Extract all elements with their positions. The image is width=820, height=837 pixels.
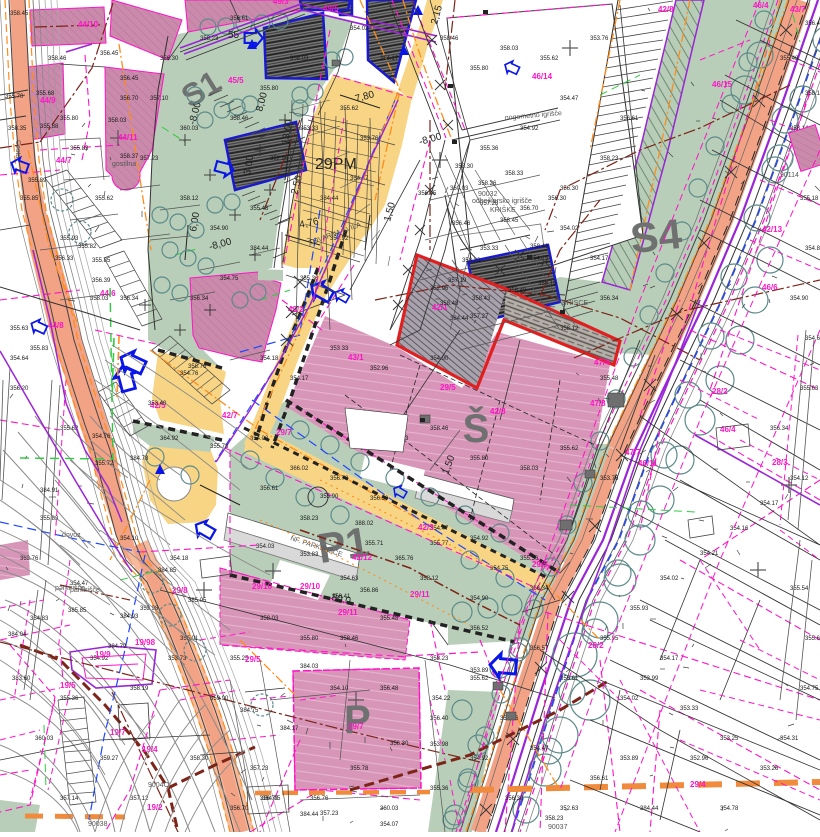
svg-text:29/5: 29/5 (245, 655, 261, 664)
svg-text:44/10: 44/10 (78, 20, 99, 29)
svg-text:356.39: 356.39 (92, 278, 111, 284)
svg-text:354.21: 354.21 (700, 551, 719, 557)
svg-text:356.34: 356.34 (120, 296, 139, 302)
svg-text:358.23: 358.23 (600, 156, 619, 162)
svg-text:357.27: 357.27 (470, 314, 489, 320)
svg-text:353.89: 353.89 (620, 756, 639, 762)
svg-text:354.22: 354.22 (432, 696, 451, 702)
svg-text:42/8: 42/8 (658, 5, 674, 14)
svg-text:355.85: 355.85 (92, 258, 111, 264)
svg-text:384.05: 384.05 (262, 796, 281, 802)
svg-text:358.19: 358.19 (130, 686, 149, 692)
svg-text:358.03: 358.03 (520, 466, 539, 472)
svg-text:354.90: 354.90 (210, 226, 229, 232)
svg-text:360.03: 360.03 (180, 126, 199, 132)
svg-text:366.02: 366.02 (290, 466, 309, 472)
svg-text:29/5: 29/5 (532, 560, 548, 569)
svg-text:353.73: 353.73 (168, 656, 187, 662)
svg-text:358.03: 358.03 (108, 118, 127, 124)
svg-text:354.31: 354.31 (780, 736, 799, 742)
svg-text:356.61: 356.61 (260, 486, 279, 492)
svg-text:42/3: 42/3 (418, 523, 434, 532)
svg-text:47/4: 47/4 (594, 358, 610, 367)
svg-text:355.80: 355.80 (300, 636, 319, 642)
svg-text:356.30: 356.30 (390, 741, 409, 747)
svg-text:355.62: 355.62 (340, 106, 359, 112)
svg-text:357.23: 357.23 (140, 156, 159, 162)
svg-text:44/11: 44/11 (118, 133, 138, 142)
svg-text:358.30: 358.30 (455, 164, 474, 170)
svg-text:354.17: 354.17 (590, 256, 609, 262)
svg-text:356.57: 356.57 (530, 646, 549, 652)
svg-text:47/7: 47/7 (625, 448, 641, 457)
svg-text:355.62: 355.62 (560, 446, 579, 452)
svg-text:356.30: 356.30 (548, 196, 567, 202)
svg-text:44/7: 44/7 (56, 156, 72, 165)
svg-text:90032: 90032 (478, 191, 498, 198)
svg-text:356.61: 356.61 (590, 776, 609, 782)
svg-text:29/11: 29/11 (410, 590, 430, 599)
svg-text:355.63: 355.63 (10, 326, 29, 332)
svg-text:356.70: 356.70 (120, 96, 139, 102)
svg-text:19/98: 19/98 (135, 638, 156, 647)
svg-text:353.98: 353.98 (430, 742, 449, 748)
svg-text:355.72: 355.72 (95, 461, 114, 467)
svg-text:356.40: 356.40 (430, 716, 449, 722)
svg-text:46/14: 46/14 (532, 72, 553, 81)
svg-text:Cesta: Cesta (14, 140, 21, 158)
svg-text:356.45: 356.45 (418, 191, 437, 197)
svg-text:29/11: 29/11 (338, 608, 358, 617)
svg-text:354.63: 354.63 (805, 336, 820, 342)
svg-text:356.52: 356.52 (470, 626, 489, 632)
svg-text:384.78: 384.78 (130, 456, 149, 462)
svg-text:28/2: 28/2 (712, 387, 728, 396)
svg-text:46/11: 46/11 (638, 459, 658, 468)
svg-text:384.03: 384.03 (300, 664, 319, 670)
svg-text:44/9: 44/9 (40, 96, 56, 105)
svg-text:358.40: 358.40 (508, 288, 527, 294)
svg-text:384.04: 384.04 (8, 632, 27, 638)
svg-text:355.48: 355.48 (600, 376, 619, 382)
svg-text:355.82: 355.82 (78, 244, 97, 250)
svg-text:354.17: 354.17 (660, 656, 679, 662)
svg-text:42/13: 42/13 (762, 225, 783, 234)
svg-text:355.48: 355.48 (380, 616, 399, 622)
svg-text:352.63: 352.63 (560, 806, 579, 812)
svg-text:355.68: 355.68 (36, 91, 55, 97)
svg-text:355.80: 355.80 (260, 86, 279, 92)
svg-text:383.60: 383.60 (12, 676, 31, 682)
svg-text:358.46: 358.46 (530, 244, 549, 250)
svg-text:354.76: 354.76 (180, 371, 199, 377)
svg-text:354.02: 354.02 (660, 576, 679, 582)
svg-text:358.03: 358.03 (290, 56, 309, 62)
svg-text:358.23: 358.23 (462, 258, 481, 264)
svg-text:355.90: 355.90 (320, 494, 339, 500)
svg-text:355.88: 355.88 (40, 124, 59, 130)
svg-text:353.33: 353.33 (330, 346, 349, 352)
svg-text:354.18: 354.18 (260, 356, 279, 362)
svg-text:355.80: 355.80 (60, 116, 79, 122)
svg-text:352.96: 352.96 (270, 156, 289, 162)
svg-text:356.45: 356.45 (100, 51, 119, 57)
svg-text:358.45: 358.45 (10, 11, 29, 17)
svg-text:29/5: 29/5 (440, 383, 456, 392)
svg-text:352.96: 352.96 (370, 366, 389, 372)
svg-text:353.26: 353.26 (760, 766, 779, 772)
svg-text:354.10: 354.10 (120, 536, 139, 542)
svg-text:360.03: 360.03 (380, 806, 399, 812)
svg-text:355.62: 355.62 (540, 56, 559, 62)
svg-text:BRISCE: BRISCE (562, 300, 588, 307)
svg-text:29/10: 29/10 (300, 582, 321, 591)
svg-text:364.92: 364.92 (160, 436, 179, 442)
svg-text:356.70: 356.70 (230, 806, 249, 812)
svg-text:358.46: 358.46 (230, 116, 249, 122)
svg-text:357.19: 357.19 (448, 278, 467, 284)
svg-text:354.47: 354.47 (560, 96, 579, 102)
svg-text:42/7: 42/7 (222, 411, 238, 420)
svg-text:354.17: 354.17 (380, 56, 399, 62)
svg-text:358.35: 358.35 (8, 126, 27, 132)
svg-text:356.46: 356.46 (452, 221, 471, 227)
svg-text:354.18: 354.18 (170, 556, 189, 562)
svg-text:384.91: 384.91 (40, 488, 59, 494)
svg-text:354.76: 354.76 (92, 434, 111, 440)
svg-text:P: P (344, 698, 371, 742)
svg-text:KRIŠKE: KRIŠKE (490, 205, 516, 214)
svg-text:384.85: 384.85 (158, 568, 177, 574)
svg-text:354.17: 354.17 (290, 376, 309, 382)
svg-text:354.92: 354.92 (520, 126, 539, 132)
svg-text:365.76: 365.76 (395, 556, 414, 562)
svg-text:46/4: 46/4 (753, 1, 769, 10)
svg-text:353.76: 353.76 (600, 476, 619, 482)
svg-text:353.33: 353.33 (680, 706, 699, 712)
svg-text:358.23: 358.23 (300, 516, 319, 522)
svg-text:358.33: 358.33 (505, 171, 524, 177)
svg-text:355.69: 355.69 (805, 636, 820, 642)
svg-text:353.89: 353.89 (470, 668, 489, 674)
svg-text:29/10: 29/10 (252, 582, 273, 591)
svg-text:358.46: 358.46 (48, 56, 67, 62)
svg-text:355.85: 355.85 (20, 196, 39, 202)
svg-text:355.48: 355.48 (780, 56, 799, 62)
svg-text:358.41: 358.41 (332, 594, 351, 600)
svg-text:356.86: 356.86 (360, 588, 379, 594)
svg-text:359.90: 359.90 (210, 696, 229, 702)
svg-text:354.90: 354.90 (790, 296, 809, 302)
svg-text:384.79: 384.79 (108, 644, 127, 650)
svg-text:358.30: 358.30 (190, 756, 209, 762)
svg-text:354.02: 354.02 (560, 226, 579, 232)
svg-text:358.03: 358.03 (500, 46, 519, 52)
svg-text:388.02: 388.02 (355, 521, 374, 527)
svg-text:384.44: 384.44 (300, 812, 319, 818)
svg-text:354.75: 354.75 (220, 276, 239, 282)
svg-text:355.54: 355.54 (790, 586, 809, 592)
svg-text:384.44: 384.44 (320, 196, 339, 202)
svg-text:354.83: 354.83 (30, 616, 49, 622)
svg-text:352.96: 352.96 (690, 756, 709, 762)
svg-text:355.01: 355.01 (180, 636, 199, 642)
svg-text:353.40: 353.40 (148, 401, 167, 407)
svg-text:55: 55 (228, 30, 240, 41)
svg-text:384.75: 384.75 (240, 708, 259, 714)
svg-text:355.93: 355.93 (630, 606, 649, 612)
svg-text:49/5: 49/5 (323, 4, 339, 13)
svg-text:358.76: 358.76 (188, 364, 207, 370)
svg-text:45/5: 45/5 (228, 76, 244, 85)
svg-text:358.03: 358.03 (260, 616, 279, 622)
svg-text:358.12: 358.12 (420, 576, 439, 582)
svg-text:353.76: 353.76 (590, 36, 609, 42)
svg-text:355.78: 355.78 (350, 766, 369, 772)
svg-text:44/6: 44/6 (100, 289, 116, 298)
svg-text:43/1: 43/1 (348, 353, 364, 362)
svg-text:49/3: 49/3 (273, 0, 289, 6)
svg-text:358.46: 358.46 (430, 426, 449, 432)
svg-text:354.87: 354.87 (805, 246, 820, 252)
svg-text:358.23: 358.23 (545, 816, 564, 822)
svg-text:43/7: 43/7 (790, 5, 806, 14)
svg-text:19/5: 19/5 (60, 681, 76, 690)
svg-text:358.46: 358.46 (440, 36, 459, 42)
svg-text:dovoz: dovoz (62, 532, 81, 539)
svg-text:355.89: 355.89 (28, 178, 47, 184)
svg-text:356.20: 356.20 (10, 386, 29, 392)
svg-text:356.61: 356.61 (560, 676, 579, 682)
svg-text:355.83: 355.83 (30, 346, 49, 352)
svg-text:355.62: 355.62 (470, 676, 489, 682)
svg-text:354.02: 354.02 (350, 26, 369, 32)
svg-text:357.14: 357.14 (60, 796, 79, 802)
svg-text:29/7: 29/7 (348, 722, 364, 731)
svg-text:19/9: 19/9 (95, 650, 111, 659)
svg-text:353.25: 353.25 (720, 736, 739, 742)
svg-text:354.16: 354.16 (730, 526, 749, 532)
svg-text:354.90: 354.90 (430, 356, 449, 362)
svg-text:354.47: 354.47 (530, 746, 549, 752)
svg-text:29/4: 29/4 (690, 780, 706, 789)
svg-text:356.61: 356.61 (230, 16, 249, 22)
svg-text:358.13: 358.13 (805, 91, 820, 97)
svg-text:385.85: 385.85 (68, 608, 87, 614)
svg-text:358.46: 358.46 (340, 636, 359, 642)
svg-text:356.34: 356.34 (190, 296, 209, 302)
svg-text:90114: 90114 (780, 172, 799, 179)
svg-text:384.93: 384.93 (120, 614, 139, 620)
svg-text:354.75: 354.75 (800, 686, 819, 692)
svg-text:355.80: 355.80 (470, 66, 489, 72)
svg-text:357.10: 357.10 (150, 96, 169, 102)
svg-text:355.36: 355.36 (60, 696, 79, 702)
svg-text:356.33: 356.33 (55, 256, 74, 262)
svg-text:S4: S4 (628, 210, 685, 262)
svg-text:358.26: 358.26 (478, 181, 497, 187)
svg-text:354.10: 354.10 (330, 686, 349, 692)
svg-text:355.93: 355.93 (60, 236, 79, 242)
svg-text:354.63: 354.63 (340, 576, 359, 582)
svg-text:358.43: 358.43 (472, 296, 491, 302)
svg-text:358.37: 358.37 (120, 154, 139, 160)
svg-text:355.78: 355.78 (210, 444, 229, 450)
svg-text:358.19: 358.19 (538, 281, 557, 287)
svg-text:356.30: 356.30 (505, 796, 524, 802)
svg-text:354.12: 354.12 (790, 476, 809, 482)
svg-text:28/2: 28/2 (588, 641, 604, 650)
svg-text:358.45: 358.45 (500, 218, 519, 224)
svg-text:353.83: 353.83 (300, 552, 319, 558)
svg-text:356.46: 356.46 (805, 21, 820, 27)
svg-text:356.48: 356.48 (380, 686, 399, 692)
svg-text:354.17: 354.17 (760, 501, 779, 507)
svg-text:29/7: 29/7 (276, 428, 292, 437)
svg-text:353.76: 353.76 (360, 136, 379, 142)
svg-text:356.34: 356.34 (600, 296, 619, 302)
svg-text:42/8: 42/8 (490, 407, 506, 416)
svg-text:354.03: 354.03 (256, 544, 275, 550)
svg-text:385.05: 385.05 (188, 598, 207, 604)
svg-text:358.48: 358.48 (440, 301, 459, 307)
svg-text:355.77: 355.77 (430, 541, 449, 547)
svg-text:355.71: 355.71 (365, 541, 384, 547)
svg-text:358.23: 358.23 (430, 656, 449, 662)
svg-text:354.07: 354.07 (380, 822, 399, 828)
svg-text:354.64: 354.64 (10, 356, 29, 362)
svg-text:358.12: 358.12 (180, 196, 199, 202)
svg-text:353.33: 353.33 (480, 246, 499, 252)
svg-text:359.27: 359.27 (100, 756, 119, 762)
svg-text:46/15: 46/15 (712, 80, 733, 89)
svg-text:384.17: 384.17 (280, 726, 299, 732)
svg-text:358.12: 358.12 (560, 326, 579, 332)
svg-text:356.61: 356.61 (620, 116, 639, 122)
svg-text:46/6: 46/6 (762, 283, 778, 292)
svg-text:90037: 90037 (548, 824, 568, 831)
svg-text:356.30: 356.30 (560, 186, 579, 192)
svg-text:Š: Š (463, 405, 490, 451)
svg-text:356.45: 356.45 (120, 76, 139, 82)
svg-text:356.70: 356.70 (520, 206, 539, 212)
svg-text:355.70: 355.70 (5, 94, 24, 100)
svg-text:357.23: 357.23 (250, 766, 269, 772)
svg-text:gostilna: gostilna (112, 161, 136, 168)
svg-text:355.36: 355.36 (480, 146, 499, 152)
svg-text:356.34: 356.34 (770, 426, 789, 432)
